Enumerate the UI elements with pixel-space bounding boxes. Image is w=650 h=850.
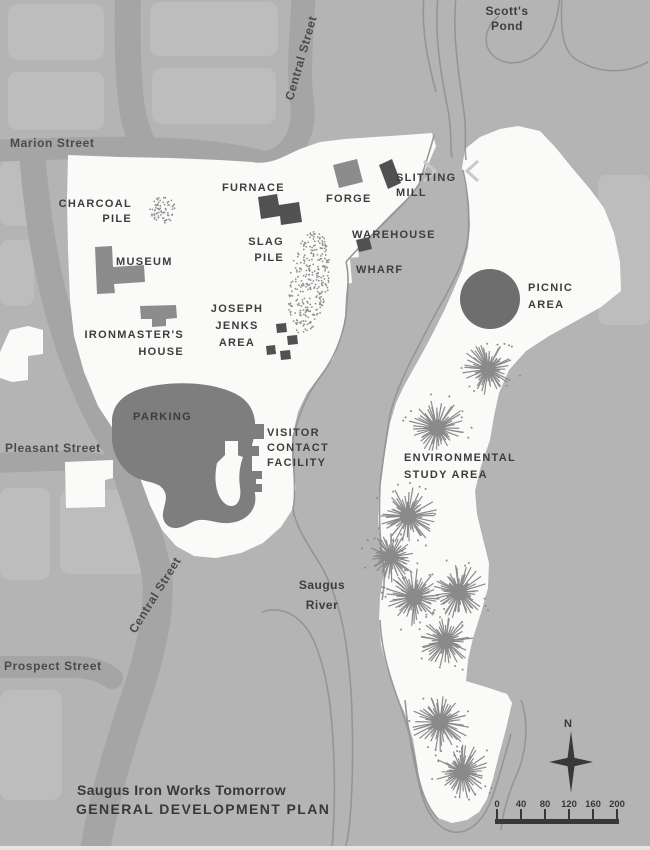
- label-wharf: WHARF: [356, 262, 403, 278]
- scale-tick-200: 200: [605, 799, 629, 810]
- label-parking: PARKING: [133, 409, 192, 425]
- picnic-area-circle: [460, 269, 520, 329]
- map-title: Saugus Iron Works Tomorrow: [77, 782, 286, 798]
- label-slag-pile: SLAG PILE: [232, 234, 284, 266]
- scan-edge: [0, 846, 650, 850]
- label-prospect-street: Prospect Street: [4, 659, 102, 673]
- label-marion-street: Marion Street: [10, 136, 94, 150]
- map-canvas: [0, 0, 650, 850]
- label-ironmasters-house: IRONMASTER'S HOUSE: [76, 327, 184, 361]
- scale-tick-120: 120: [557, 799, 581, 810]
- label-picnic-area: PICNIC AREA: [528, 280, 573, 314]
- map-subtitle: GENERAL DEVELOPMENT PLAN: [76, 801, 330, 817]
- scale-tick-40: 40: [509, 799, 533, 810]
- label-museum: MUSEUM: [116, 254, 173, 270]
- scale-tick-80: 80: [533, 799, 557, 810]
- label-charcoal-pile: CHARCOAL PILE: [44, 197, 132, 227]
- label-saugus-river: Saugus River: [292, 575, 352, 615]
- development-plan-map: Scott's Pond Central Street Marion Stree…: [0, 0, 650, 850]
- label-furnace: FURNACE: [222, 180, 285, 196]
- scale-tick-160: 160: [581, 799, 605, 810]
- label-warehouse: WAREHOUSE: [352, 227, 436, 243]
- scale-tick-0: 0: [485, 799, 509, 810]
- label-joseph-jenks-area: JOSEPH JENKS AREA: [202, 301, 272, 352]
- label-forge: FORGE: [326, 191, 372, 207]
- label-visitor-contact-facility: VISITOR CONTACT FACILITY: [267, 426, 329, 471]
- compass-north-label: N: [564, 718, 572, 730]
- label-scotts-pond: Scott's Pond: [478, 4, 536, 34]
- label-slitting-mill: SLITTING MILL: [396, 171, 457, 201]
- label-pleasant-street: Pleasant Street: [5, 441, 101, 455]
- label-environmental-study-area: ENVIRONMENTAL STUDY AREA: [404, 450, 516, 484]
